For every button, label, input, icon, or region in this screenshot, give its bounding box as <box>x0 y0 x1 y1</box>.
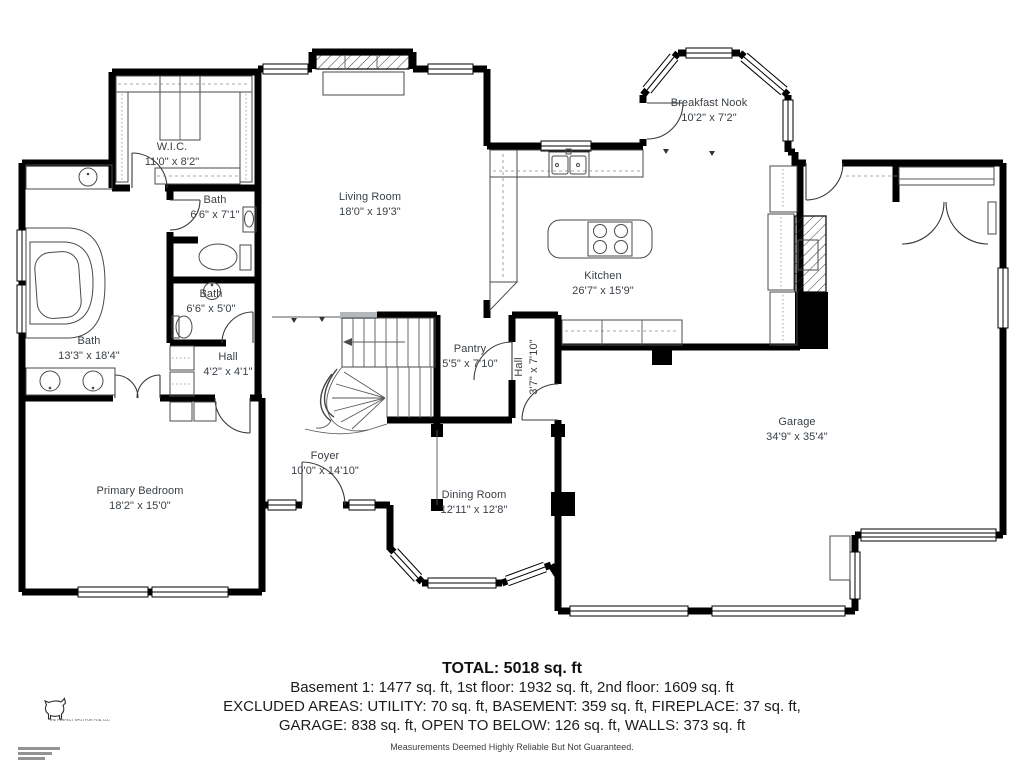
bathtub <box>26 228 105 338</box>
room-label-bath-middle: Bath 6'6" x 5'0" <box>186 287 235 317</box>
room-dims: 10'0" x 14'10" <box>291 464 359 479</box>
chimney-mass <box>795 292 828 349</box>
room-label-kitchen: Kitchen 26'7" x 15'9" <box>572 269 634 299</box>
room-name: Garage <box>766 415 828 430</box>
bath-french-doors <box>115 375 160 398</box>
fine-print-text <box>18 747 60 762</box>
room-label-primary-bedroom: Primary Bedroom 18'2" x 15'0" <box>96 484 183 514</box>
room-name: Living Room <box>339 190 401 205</box>
garage-entry-door <box>806 163 843 200</box>
room-label-hall-vertical: Hall 3'7" x 7'10" <box>512 339 542 394</box>
room-name: Hall <box>203 350 252 365</box>
wall-post <box>652 347 672 365</box>
floor-areas: Basement 1: 1477 sq. ft, 1st floor: 1932… <box>0 678 1024 697</box>
room-dims: 10'2" x 7'2" <box>671 111 748 126</box>
walls <box>22 52 1003 611</box>
room-dims: 12'11" x 12'8" <box>440 503 507 518</box>
room-label-dining-room: Dining Room 12'11" x 12'8" <box>440 488 507 518</box>
room-dims: 26'7" x 15'9" <box>572 284 634 299</box>
staircase <box>305 312 435 434</box>
vanity-sink <box>26 165 112 189</box>
garage-door <box>861 529 996 541</box>
room-dims: 11'0" x 8'2" <box>145 155 200 170</box>
room-dims: 18'0" x 19'3" <box>339 205 401 220</box>
room-label-pantry: Pantry 5'5" x 7'10" <box>442 342 497 372</box>
kitchen-cabinet <box>770 166 797 212</box>
excluded-areas-line2: GARAGE: 838 sq. ft, OPEN TO BELOW: 126 s… <box>0 716 1024 735</box>
room-name: Bath <box>58 334 120 349</box>
linen-closet <box>170 346 194 396</box>
column-post <box>551 424 565 437</box>
room-name: Bath <box>190 193 239 208</box>
room-dims: 5'5" x 7'10" <box>442 357 497 372</box>
room-name: W.I.C. <box>145 140 200 155</box>
floor-plan-page: W.I.C. 11'0" x 8'2" Bath 6'6" x 7'1" Liv… <box>0 0 1024 768</box>
garage-closet-doors <box>902 202 996 244</box>
room-dims: 6'6" x 7'1" <box>190 208 239 223</box>
total-area: TOTAL: 5018 sq. ft <box>0 659 1024 678</box>
room-name: Kitchen <box>572 269 634 284</box>
room-dims: 13'3" x 18'4" <box>58 349 120 364</box>
room-label-bath-upper: Bath 6'6" x 7'1" <box>190 193 239 223</box>
room-name: Foyer <box>291 449 359 464</box>
room-dims: 34'9" x 35'4" <box>766 430 828 445</box>
kitchen-counter-bottom <box>562 320 682 345</box>
bedroom-door <box>215 398 250 433</box>
garage-closet-counter <box>899 167 994 185</box>
room-dims: 18'2" x 15'0" <box>96 499 183 514</box>
company-name: THE PERFECT SPOT FOR YOU, LLC <box>49 719 103 722</box>
bedroom-dressers <box>170 402 216 421</box>
double-vanity <box>26 368 115 395</box>
room-label-foyer: Foyer 10'0" x 14'10" <box>291 449 359 479</box>
excluded-areas-line1: EXCLUDED AREAS: UTILITY: 70 sq. ft, BASE… <box>0 697 1024 716</box>
fireplace-kitchen <box>795 216 826 292</box>
kitchen-counter-left <box>490 150 517 282</box>
room-label-hall-small: Hall 4'2" x 4'1" <box>203 350 252 380</box>
hearth <box>323 72 404 95</box>
pedestal-sink <box>243 207 256 232</box>
service-door-panel <box>830 536 850 580</box>
room-dims: 4'2" x 4'1" <box>203 365 252 380</box>
wall-pilaster <box>551 492 575 516</box>
room-dims: 3'7" x 7'10" <box>527 339 542 394</box>
toilet <box>199 244 251 270</box>
fireplace-living <box>316 55 409 95</box>
room-name: Dining Room <box>440 488 507 503</box>
company-logo-dog-icon <box>40 697 70 721</box>
room-label-breakfast-nook: Breakfast Nook 10'2" x 7'2" <box>671 96 748 126</box>
disclaimer: Measurements Deemed Highly Reliable But … <box>0 742 1024 752</box>
room-name: Pantry <box>442 342 497 357</box>
area-summary: TOTAL: 5018 sq. ft Basement 1: 1477 sq. … <box>0 659 1024 752</box>
kitchen-cabinet <box>770 292 797 345</box>
toilet <box>172 316 192 338</box>
room-label-wic: W.I.C. 11'0" x 8'2" <box>145 140 200 170</box>
room-label-bath-primary: Bath 13'3" x 18'4" <box>58 334 120 364</box>
stairs-direction-arrow <box>343 338 352 346</box>
room-dims: 6'6" x 5'0" <box>186 302 235 317</box>
room-name: Breakfast Nook <box>671 96 748 111</box>
room-label-garage: Garage 34'9" x 35'4" <box>766 415 828 445</box>
garage-fixtures <box>830 167 994 580</box>
kitchen-sink <box>549 149 589 177</box>
room-label-living-room: Living Room 18'0" x 19'3" <box>339 190 401 220</box>
room-name: Hall <box>512 339 527 394</box>
room-name: Primary Bedroom <box>96 484 183 499</box>
room-name: Bath <box>186 287 235 302</box>
kitchen-island <box>548 220 652 258</box>
